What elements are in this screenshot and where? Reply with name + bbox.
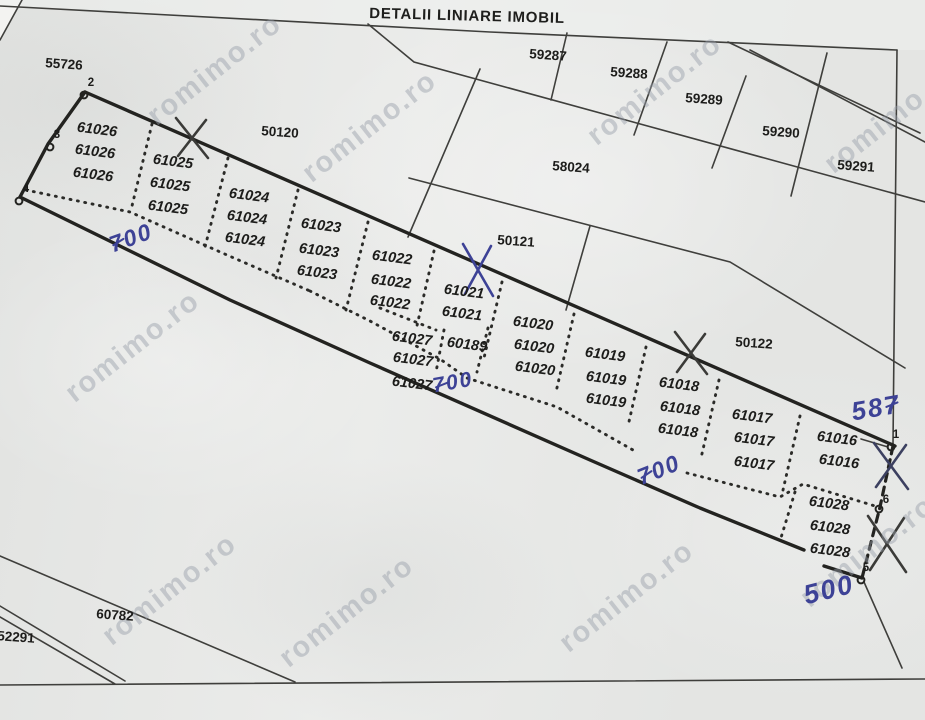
boundary-point-4: [16, 198, 23, 205]
boundary-point-number-4: 4: [23, 183, 29, 195]
parcel-label-59288: 59288: [610, 64, 649, 82]
parcel-label-50122: 50122: [735, 334, 774, 352]
parcel-label-60782: 60782: [96, 606, 135, 624]
map-lines-svg: [0, 0, 925, 720]
crossed-seven-stroke: [640, 470, 653, 480]
cadastral-map-page: DETALII LINIARE IMOBIL romimo.roromimo.r…: [0, 0, 925, 720]
parcel-label-58024: 58024: [552, 158, 591, 176]
parcel-label-59291: 59291: [837, 157, 876, 175]
crossed-seven-stroke: [435, 381, 449, 388]
parcel-label-50120: 50120: [261, 123, 300, 141]
boundary-point-number-6: 6: [883, 494, 889, 506]
parcel-label-59287: 59287: [529, 46, 568, 64]
boundary-point-number-3: 3: [54, 129, 60, 141]
boundary-point-number-2: 2: [88, 77, 94, 89]
parcel-label-55726: 55726: [45, 55, 84, 73]
parcel-label-59290: 59290: [762, 123, 801, 141]
parcel-label-52291: 52291: [0, 628, 35, 646]
crossed-seven-stroke: [885, 401, 899, 408]
boundary-point-number-5: 5: [863, 562, 869, 574]
crossed-seven-stroke: [112, 237, 125, 246]
boundary-point-number-1: 1: [893, 429, 899, 441]
parcel-label-50121: 50121: [497, 232, 536, 250]
parcel-label-59289: 59289: [685, 90, 724, 108]
